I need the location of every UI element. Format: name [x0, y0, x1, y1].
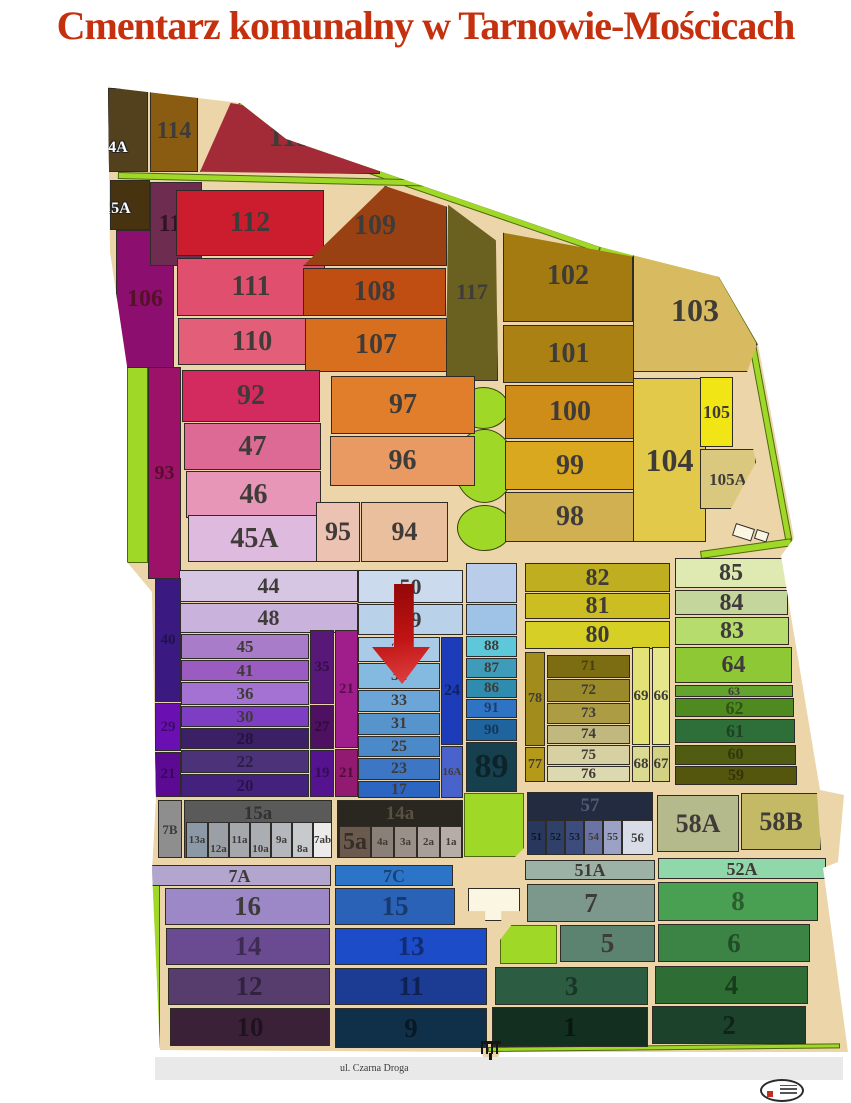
map-section-12a: 12a [208, 822, 229, 858]
map-section-16: 16 [165, 888, 330, 925]
map-section-95: 95 [316, 502, 360, 562]
map-section-13a: 13a [186, 822, 208, 858]
map-section-29: 29 [155, 703, 181, 751]
map-section-68: 68 [632, 746, 650, 782]
map-section-unlabeled [108, 88, 148, 172]
map-section-41: 41 [181, 660, 309, 681]
map-section-101: 101 [503, 325, 634, 383]
logo-red-square [767, 1091, 773, 1097]
map-section-75: 75 [547, 745, 630, 765]
map-section-88: 88 [466, 636, 517, 657]
map-section-93: 93 [148, 367, 181, 579]
map-section-74: 74 [547, 725, 630, 744]
map-section-33: 33 [358, 690, 440, 712]
map-section-92: 92 [182, 370, 320, 422]
map-section-21: 21 [335, 630, 358, 748]
map-section-31: 31 [358, 713, 440, 735]
map-section-7: 7 [527, 884, 655, 922]
map-section-35: 35 [310, 630, 334, 704]
map-section-76: 76 [547, 766, 630, 782]
map-section-107: 107 [305, 318, 447, 372]
map-section-110: 110 [178, 318, 326, 365]
map-section-36: 36 [181, 682, 309, 705]
map-section-45: 45 [181, 634, 309, 659]
map-section-82: 82 [525, 563, 670, 592]
map-section-45A: 45A [188, 515, 321, 562]
map-section-105A: 105A [700, 449, 756, 509]
map-section-84: 84 [675, 590, 788, 615]
map-section-5a: 5a [339, 826, 371, 858]
map-section-109: 109 [303, 186, 447, 266]
map-section-105: 105 [700, 377, 733, 447]
map-section-89: 89 [466, 742, 517, 792]
cemetery-map: 1141131061151121111101091081071171021011… [0, 0, 851, 1103]
map-section-10a: 10a [250, 822, 271, 858]
map-section-21: 21 [155, 752, 181, 797]
map-section-100: 100 [505, 385, 635, 439]
map-section-103: 103 [633, 247, 757, 372]
map-section-59: 59 [675, 766, 797, 785]
map-section-15: 15 [335, 888, 455, 925]
page-title: Cmentarz komunalny w Tarnowie-Mościcach [0, 0, 851, 52]
street-strip: ul. Czarna Droga [155, 1057, 843, 1080]
map-section-46: 46 [186, 471, 321, 518]
map-section-96: 96 [330, 436, 475, 486]
map-section-2: 2 [652, 1006, 806, 1044]
map-section-22: 22 [181, 750, 309, 773]
map-section-78: 78 [525, 652, 545, 746]
map-section-67: 67 [652, 746, 670, 782]
map-section-3: 3 [495, 967, 648, 1005]
map-section-52A: 52A [658, 858, 826, 879]
map-section-28: 28 [181, 728, 309, 749]
map-section-9a: 9a [271, 822, 292, 858]
map-section-7C: 7C [335, 865, 453, 886]
green-area [500, 925, 557, 964]
map-section-label-114A: 114A [93, 139, 128, 157]
green-area [464, 793, 524, 857]
map-section-51A: 51A [525, 860, 655, 880]
map-section-1: 1 [492, 1007, 648, 1047]
map-section-13: 13 [335, 928, 487, 965]
map-section-53: 53 [565, 820, 584, 855]
map-section-91: 91 [466, 699, 517, 718]
map-section-85: 85 [675, 558, 787, 588]
map-section-62: 62 [675, 698, 794, 717]
map-section-58B: 58B [741, 793, 821, 850]
map-section-17: 17 [358, 781, 440, 798]
map-section-40: 40 [155, 578, 181, 702]
map-section-27: 27 [310, 705, 334, 749]
map-section-73: 73 [547, 703, 630, 724]
map-section-25: 25 [358, 736, 440, 757]
map-section-1a: 1a [440, 826, 462, 858]
map-section-98: 98 [505, 492, 635, 542]
building [732, 523, 755, 542]
map-section-97: 97 [331, 376, 475, 434]
map-section-4a: 4a [371, 826, 394, 858]
map-section-60: 60 [675, 745, 796, 765]
map-section-71: 71 [547, 655, 630, 678]
map-section-63: 63 [675, 685, 793, 697]
map-section-8a: 8a [292, 822, 313, 858]
map-section-7B: 7B [158, 800, 182, 858]
map-section-113: 113 [200, 100, 380, 174]
map-section-90: 90 [466, 719, 517, 741]
map-section-11a: 11a [229, 822, 250, 858]
map-section-11: 11 [335, 968, 487, 1005]
map-section-16A: 16A [441, 746, 463, 798]
map-section-83: 83 [675, 617, 789, 645]
green-edge [700, 538, 792, 559]
map-section-69: 69 [632, 647, 650, 745]
map-section-81: 81 [525, 593, 670, 619]
map-section-55: 55 [603, 820, 622, 855]
map-section-72: 72 [547, 679, 630, 702]
map-section-7ab: 7ab [313, 822, 332, 858]
map-section-54: 54 [584, 820, 603, 855]
mpgk-logo [760, 1079, 804, 1102]
map-section-51: 51 [527, 820, 546, 855]
map-section-24: 24 [441, 637, 463, 745]
map-section-7A: 7A [148, 865, 331, 886]
map-section-87: 87 [466, 658, 517, 678]
map-section-2a: 2a [417, 826, 440, 858]
map-section-unlabeled [466, 604, 517, 635]
map-section-label-115A: 115A [96, 200, 131, 218]
map-section-58A: 58A [657, 795, 739, 852]
map-section-20: 20 [181, 774, 309, 797]
map-section-56: 56 [622, 820, 653, 855]
map-section-64: 64 [675, 647, 792, 683]
map-section-10: 10 [170, 1008, 330, 1046]
green-roundabout [457, 505, 512, 551]
map-section-23: 23 [358, 758, 440, 780]
green-edge [127, 367, 148, 563]
map-section-86: 86 [466, 679, 517, 698]
map-section-unlabeled [466, 563, 517, 603]
map-section-114: 114 [150, 90, 198, 172]
map-section-47: 47 [184, 423, 321, 470]
map-section-108: 108 [303, 268, 446, 316]
map-section-80: 80 [525, 621, 670, 649]
main-gate-icon [481, 1041, 501, 1054]
map-section-19: 19 [310, 750, 334, 797]
map-section-99: 99 [505, 441, 635, 490]
map-section-5: 5 [560, 925, 655, 962]
map-section-61: 61 [675, 719, 795, 743]
street-name: ul. Czarna Droga [340, 1063, 409, 1074]
map-section-3a: 3a [394, 826, 417, 858]
map-section-30: 30 [181, 706, 309, 727]
map-section-66: 66 [652, 647, 670, 745]
map-section-8: 8 [658, 882, 818, 921]
chapel-building [468, 888, 520, 921]
map-section-48: 48 [179, 603, 358, 633]
map-section-52: 52 [546, 820, 565, 855]
map-section-6: 6 [658, 924, 810, 962]
map-section-77: 77 [525, 747, 545, 782]
map-section-104: 104 [633, 378, 706, 542]
map-section-14: 14 [166, 928, 330, 965]
map-section-21: 21 [335, 749, 358, 797]
map-section-117: 117 [446, 203, 498, 381]
map-section-94: 94 [361, 502, 448, 562]
map-section-12: 12 [168, 968, 330, 1005]
logo-lines [780, 1085, 797, 1094]
map-section-44: 44 [179, 570, 358, 602]
map-section-112: 112 [176, 190, 324, 256]
green-edge [150, 884, 160, 1048]
map-section-4: 4 [655, 966, 808, 1004]
map-section-102: 102 [503, 230, 633, 322]
green-edge [749, 344, 792, 542]
map-section-9: 9 [335, 1008, 487, 1048]
